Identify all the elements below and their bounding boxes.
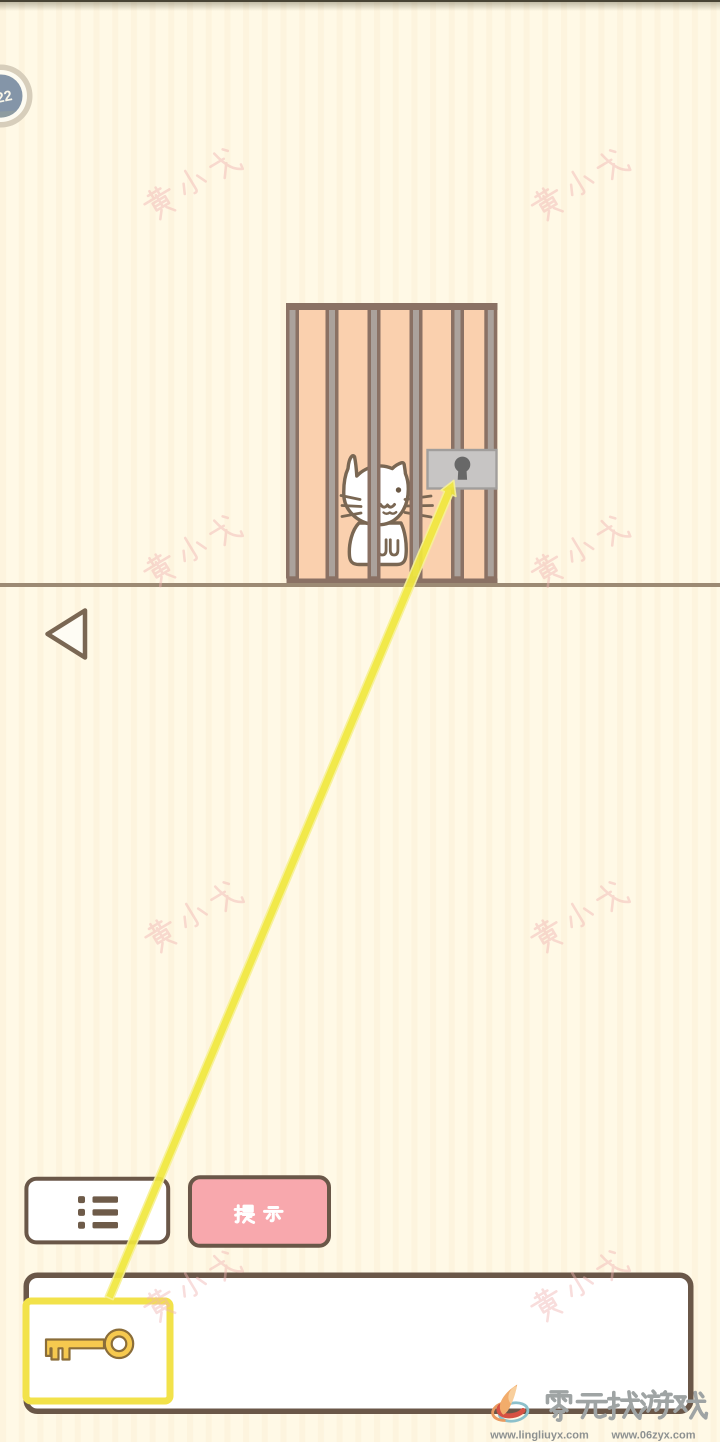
svg-text:www.lingliuyx.com: www.lingliuyx.com — [489, 1430, 589, 1442]
svg-text:www.06zyx.com: www.06zyx.com — [611, 1430, 696, 1442]
